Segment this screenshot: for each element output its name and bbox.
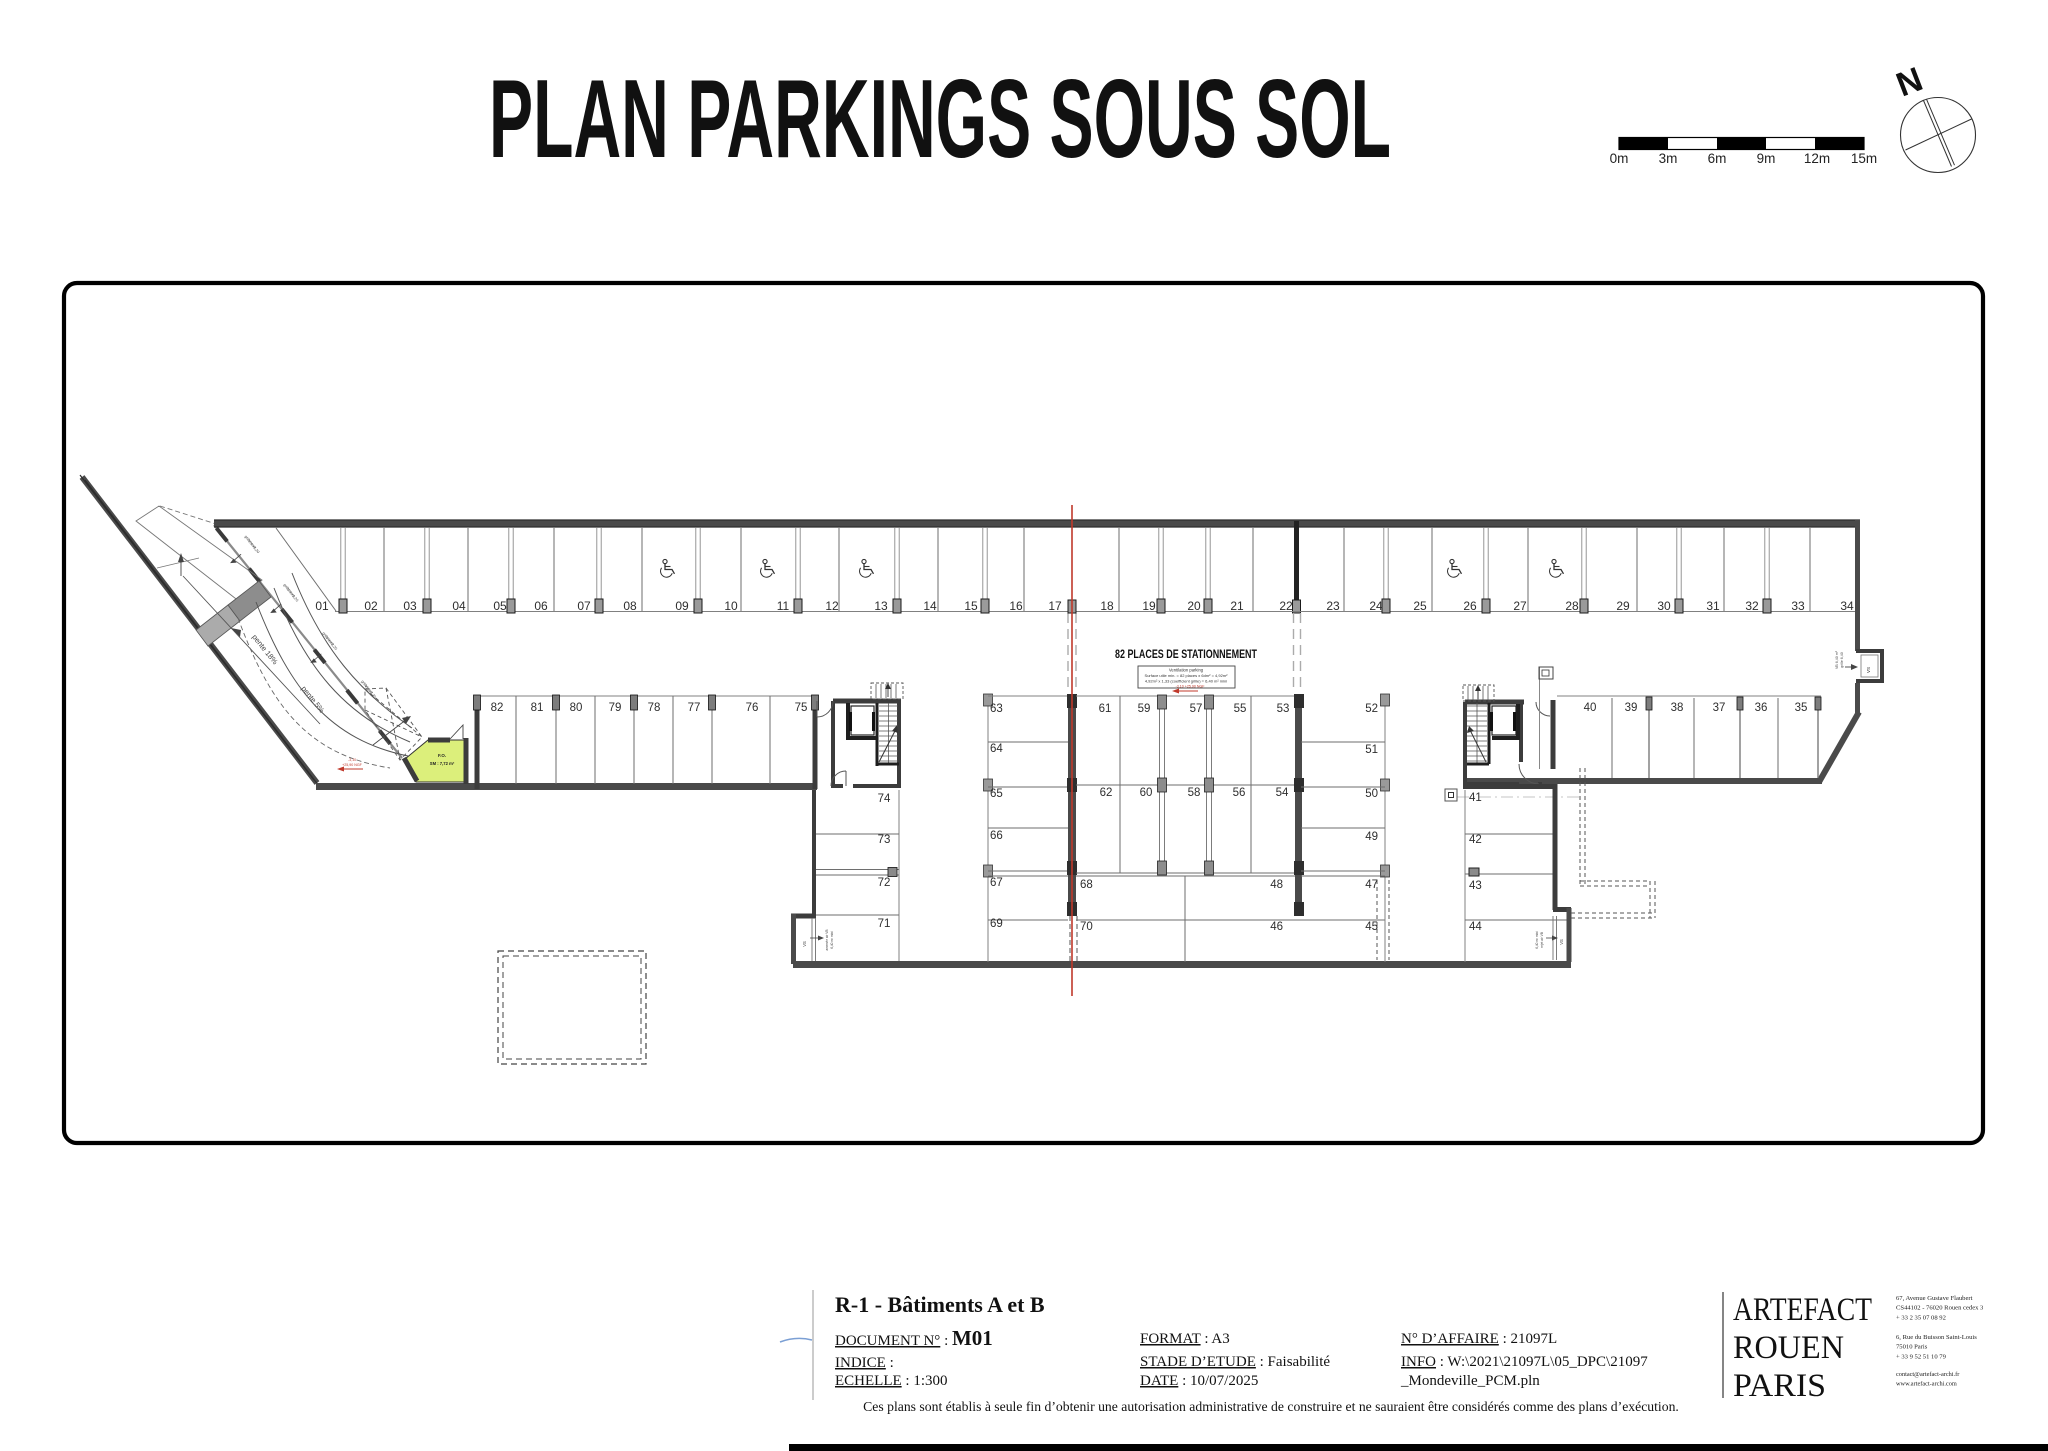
svg-text:72: 72 xyxy=(878,877,891,889)
svg-text:21: 21 xyxy=(1230,599,1244,613)
svg-text:80: 80 xyxy=(570,702,583,714)
svg-text:03: 03 xyxy=(403,599,417,613)
svg-text:75: 75 xyxy=(795,702,808,714)
svg-text:71: 71 xyxy=(878,918,891,930)
svg-text:60: 60 xyxy=(1140,787,1153,799)
svg-text:6,40 m² mini: 6,40 m² mini xyxy=(1535,931,1539,949)
svg-text:67, Avenue Gustave Flaubert: 67, Avenue Gustave Flaubert xyxy=(1896,1295,1973,1302)
svg-text:35: 35 xyxy=(1795,702,1808,714)
svg-text:+ 33 9 52 51 10 79: + 33 9 52 51 10 79 xyxy=(1896,1353,1947,1360)
svg-text:contact@artefact-archi.fr: contact@artefact-archi.fr xyxy=(1896,1371,1960,1378)
svg-text:FORMAT : A3: FORMAT : A3 xyxy=(1140,1331,1230,1347)
svg-text:VS: VS xyxy=(1866,667,1871,673)
svg-text:50: 50 xyxy=(1365,788,1378,800)
svg-text:52: 52 xyxy=(1365,703,1378,715)
svg-text:39: 39 xyxy=(1625,702,1638,714)
svg-text:6,40 m² mini: 6,40 m² mini xyxy=(830,931,834,949)
svg-text:20: 20 xyxy=(1187,599,1201,613)
svg-text:66: 66 xyxy=(990,830,1003,842)
svg-text:3m: 3m xyxy=(1659,151,1678,166)
svg-text:VS: VS xyxy=(802,941,807,947)
svg-text:63: 63 xyxy=(990,703,1003,715)
svg-text:VS: VS xyxy=(1559,939,1564,945)
svg-text:57: 57 xyxy=(1190,703,1203,715)
svg-text:-3,10: -3,10 xyxy=(348,758,356,762)
svg-text:INFO : W:\2021\21097L\05_DPC\2: INFO : W:\2021\21097L\05_DPC\21097 xyxy=(1401,1354,1648,1370)
svg-text:ARTEFACT: ARTEFACT xyxy=(1733,1292,1872,1328)
svg-text:28: 28 xyxy=(1565,599,1579,613)
svg-text:45: 45 xyxy=(1365,921,1378,933)
svg-text:CS44102 - 76020 Rouen cedex 3: CS44102 - 76020 Rouen cedex 3 xyxy=(1896,1305,1984,1312)
svg-text:17: 17 xyxy=(1048,599,1062,613)
svg-text:07: 07 xyxy=(577,599,591,613)
svg-text:19: 19 xyxy=(1142,599,1156,613)
svg-text:25: 25 xyxy=(1413,599,1427,613)
svg-text:75010 Paris: 75010 Paris xyxy=(1896,1344,1928,1351)
svg-text:36: 36 xyxy=(1755,702,1768,714)
svg-text:58: 58 xyxy=(1188,787,1201,799)
svg-text:PARIS: PARIS xyxy=(1733,1368,1826,1404)
svg-text:47: 47 xyxy=(1365,879,1378,891)
svg-text:65: 65 xyxy=(990,788,1003,800)
svg-text:12: 12 xyxy=(825,599,839,613)
svg-text:56: 56 xyxy=(1233,787,1246,799)
svg-text:PLAN PARKINGS SOUS SOL: PLAN PARKINGS SOUS SOL xyxy=(489,57,1391,181)
svg-text:78: 78 xyxy=(648,702,661,714)
svg-text:Surface utile min. = 82 places: Surface utile min. = 82 places x 6dm² = … xyxy=(1145,673,1229,678)
svg-text:01: 01 xyxy=(315,599,329,613)
svg-text:-3,10 +25,90 NGF: -3,10 +25,90 NGF xyxy=(1176,685,1206,689)
svg-text:81: 81 xyxy=(531,702,544,714)
svg-text:16: 16 xyxy=(1009,599,1023,613)
svg-text:02: 02 xyxy=(364,599,378,613)
svg-text:44: 44 xyxy=(1469,921,1482,933)
svg-text:26: 26 xyxy=(1463,599,1477,613)
svg-text:64: 64 xyxy=(990,743,1003,755)
svg-text:74: 74 xyxy=(878,793,891,805)
svg-text:46: 46 xyxy=(1270,921,1283,933)
svg-text:30: 30 xyxy=(1657,599,1671,613)
svg-text:79: 79 xyxy=(609,702,622,714)
svg-text:43: 43 xyxy=(1469,880,1482,892)
svg-text:05: 05 xyxy=(493,599,507,613)
svg-text:06: 06 xyxy=(534,599,548,613)
svg-text:61: 61 xyxy=(1099,703,1112,715)
svg-text:0m: 0m xyxy=(1610,151,1629,166)
svg-text:32: 32 xyxy=(1745,599,1759,613)
svg-text:48: 48 xyxy=(1270,879,1283,891)
svg-text:68: 68 xyxy=(1080,879,1093,891)
svg-text:+ 33 2 35 07 08 92: + 33 2 35 07 08 92 xyxy=(1896,1314,1946,1321)
svg-text:49: 49 xyxy=(1365,831,1378,843)
svg-text:_Mondeville_PCM.pln: _Mondeville_PCM.pln xyxy=(1400,1373,1540,1389)
svg-text:53: 53 xyxy=(1277,703,1290,715)
svg-text:amenée air VB: amenée air VB xyxy=(825,929,829,950)
svg-text:grille 6,40: grille 6,40 xyxy=(1840,652,1844,668)
svg-text:13: 13 xyxy=(874,599,888,613)
svg-text:37: 37 xyxy=(1713,702,1726,714)
svg-text:Ces plans sont établis à seule: Ces plans sont établis à seule fin d’obt… xyxy=(863,1399,1679,1414)
svg-text:ECHELLE : 1:300: ECHELLE : 1:300 xyxy=(835,1373,948,1389)
svg-text:70: 70 xyxy=(1080,921,1093,933)
svg-text:14: 14 xyxy=(923,599,937,613)
svg-text:22: 22 xyxy=(1279,599,1293,613)
svg-text:29: 29 xyxy=(1616,599,1630,613)
svg-text:INDICE :: INDICE : xyxy=(835,1355,894,1371)
svg-text:62: 62 xyxy=(1100,787,1113,799)
svg-text:69: 69 xyxy=(990,918,1003,930)
svg-text:42: 42 xyxy=(1469,834,1482,846)
svg-text:VB 6,40 m²: VB 6,40 m² xyxy=(1835,650,1839,669)
svg-text:15: 15 xyxy=(964,599,978,613)
svg-text:77: 77 xyxy=(688,702,701,714)
svg-text:ROUEN: ROUEN xyxy=(1733,1330,1844,1366)
svg-text:11: 11 xyxy=(777,599,790,613)
svg-text:40: 40 xyxy=(1584,702,1597,714)
svg-text:55: 55 xyxy=(1234,703,1247,715)
svg-text:24: 24 xyxy=(1369,599,1383,613)
svg-text:DATE : 10/07/2025: DATE : 10/07/2025 xyxy=(1140,1373,1258,1389)
svg-text:73: 73 xyxy=(878,834,891,846)
svg-text:23: 23 xyxy=(1326,599,1340,613)
svg-text:6m: 6m xyxy=(1708,151,1727,166)
svg-text:33: 33 xyxy=(1791,599,1805,613)
svg-text:31: 31 xyxy=(1706,599,1720,613)
svg-text:04: 04 xyxy=(452,599,466,613)
svg-text:R-1 - Bâtiments A et B: R-1 - Bâtiments A et B xyxy=(835,1292,1045,1317)
svg-text:4,92m² x 1,33 (coefficient gri: 4,92m² x 1,33 (coefficient grille) = 6,4… xyxy=(1145,679,1227,684)
svg-text:27: 27 xyxy=(1513,599,1527,613)
svg-text:51: 51 xyxy=(1365,744,1378,756)
svg-text:9m: 9m xyxy=(1757,151,1776,166)
svg-text:08: 08 xyxy=(623,599,637,613)
svg-text:www.artefact-archi.com: www.artefact-archi.com xyxy=(1896,1381,1957,1388)
svg-text:SM : 7,72 m²: SM : 7,72 m² xyxy=(430,761,455,766)
svg-text:N° D’AFFAIRE : 21097L: N° D’AFFAIRE : 21097L xyxy=(1401,1331,1557,1347)
svg-text:Ventilation parking: Ventilation parking xyxy=(1169,668,1204,673)
svg-text:12m: 12m xyxy=(1804,151,1830,166)
svg-text:6, Rue du Buisson Saint-Louis: 6, Rue du Buisson Saint-Louis xyxy=(1896,1334,1977,1341)
svg-text:+25,90 NGF: +25,90 NGF xyxy=(342,763,362,767)
svg-text:10: 10 xyxy=(724,599,738,613)
svg-text:rejet air VB: rejet air VB xyxy=(1540,932,1544,948)
svg-text:76: 76 xyxy=(746,702,759,714)
svg-text:38: 38 xyxy=(1671,702,1684,714)
svg-text:41: 41 xyxy=(1469,792,1482,804)
svg-text:82: 82 xyxy=(491,702,504,714)
svg-text:34: 34 xyxy=(1840,599,1854,613)
svg-text:STADE D’ETUDE : Faisabilité: STADE D’ETUDE : Faisabilité xyxy=(1140,1354,1330,1370)
svg-text:82 PLACES DE STATIONNEMENT: 82 PLACES DE STATIONNEMENT xyxy=(1115,649,1257,661)
svg-text:18: 18 xyxy=(1100,599,1114,613)
svg-text:54: 54 xyxy=(1276,787,1289,799)
svg-text:15m: 15m xyxy=(1851,151,1877,166)
svg-text:F.O.: F.O. xyxy=(438,753,446,758)
svg-text:59: 59 xyxy=(1138,703,1151,715)
svg-text:67: 67 xyxy=(990,877,1003,889)
svg-text:09: 09 xyxy=(675,599,689,613)
